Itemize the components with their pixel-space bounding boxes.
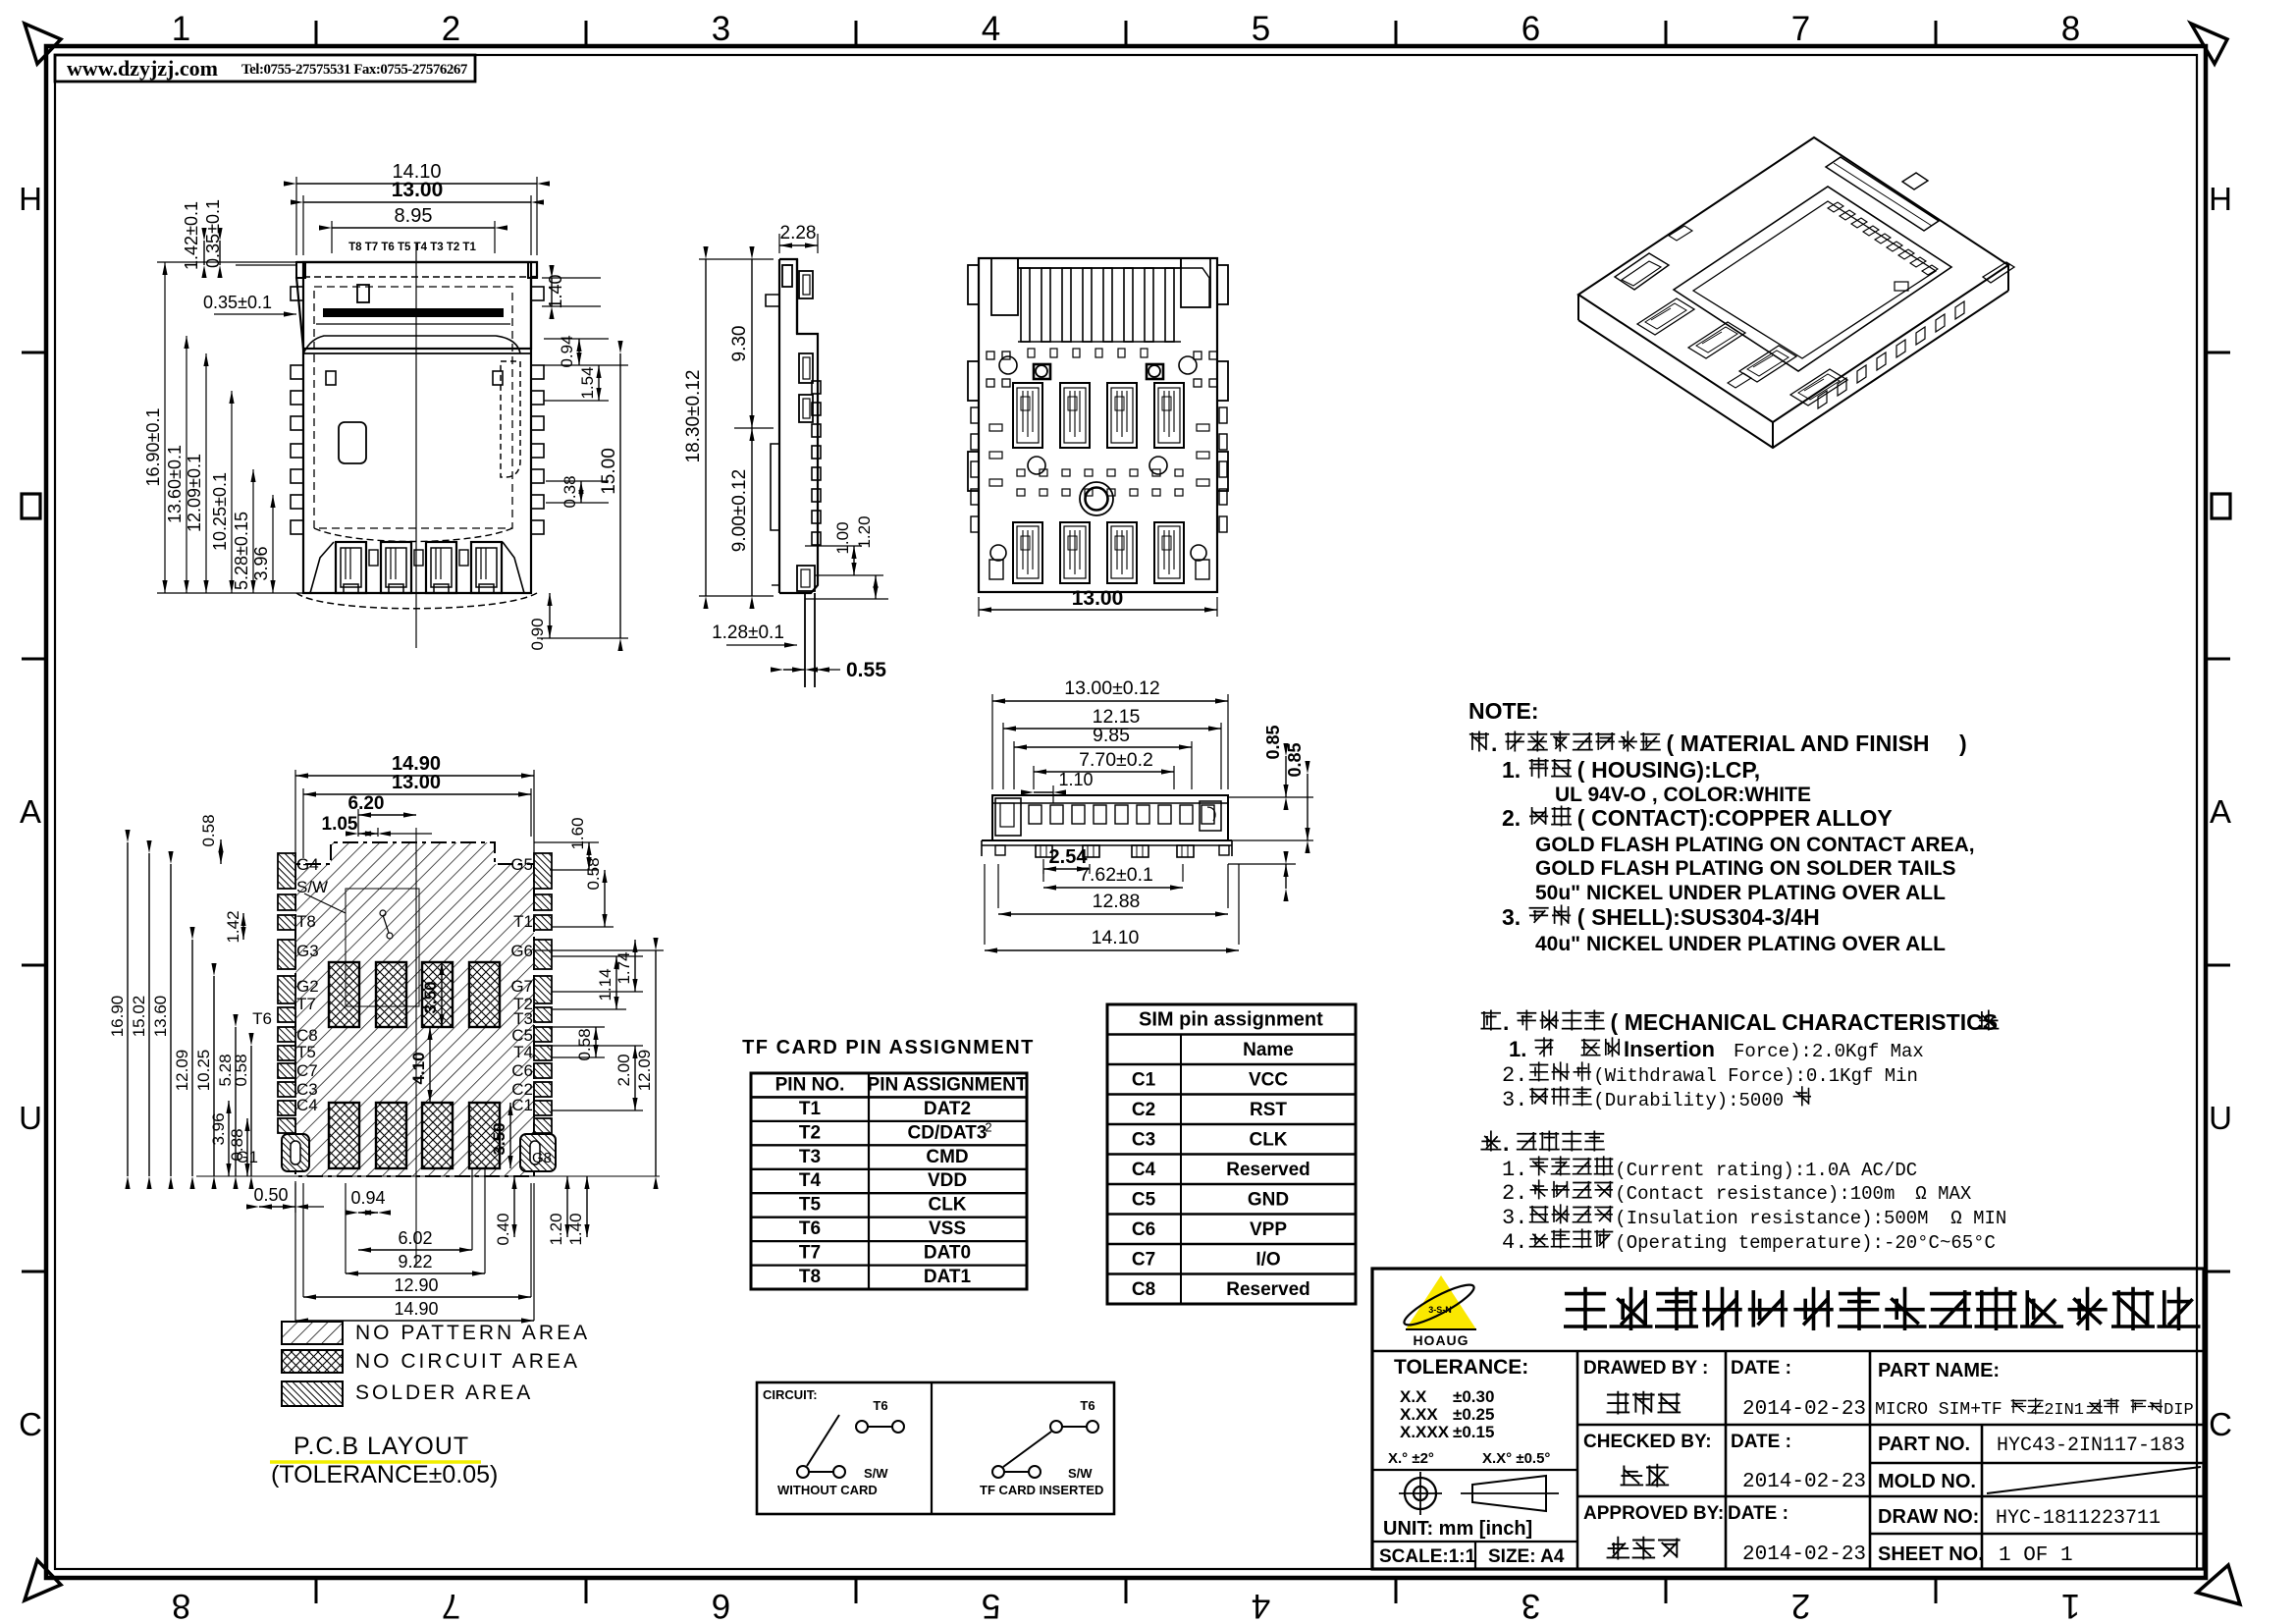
svg-text:1.40: 1.40 <box>566 1213 585 1245</box>
svg-text:10.25: 10.25 <box>194 1050 213 1092</box>
svg-text:T4: T4 <box>799 1170 822 1191</box>
svg-text:12.09: 12.09 <box>173 1050 191 1092</box>
svg-text:S/W: S/W <box>296 878 328 896</box>
svg-text:PIN NO.: PIN NO. <box>775 1074 845 1095</box>
svg-text:1.20: 1.20 <box>547 1213 565 1245</box>
svg-text:G5: G5 <box>510 855 533 874</box>
svg-text:7.70±0.2: 7.70±0.2 <box>1079 749 1153 771</box>
svg-text:TF CARD PIN ASSIGNMENT: TF CARD PIN ASSIGNMENT <box>742 1037 1035 1058</box>
svg-text:VSS: VSS <box>929 1218 966 1239</box>
svg-text:PART NAME:: PART NAME: <box>1878 1360 2000 1381</box>
svg-text:1.05: 1.05 <box>322 814 358 835</box>
svg-text:T6: T6 <box>252 1009 272 1028</box>
svg-text:PIN ASSIGNMENT: PIN ASSIGNMENT <box>868 1074 1028 1095</box>
svg-text:0.58: 0.58 <box>584 857 603 890</box>
svg-text:VDD: VDD <box>928 1170 967 1191</box>
svg-text:1.00: 1.00 <box>833 521 852 554</box>
svg-text:40u" NICKEL UNDER PLATING: 40u" NICKEL UNDER PLATING OVER ALL <box>1535 933 1946 955</box>
svg-text:0.58: 0.58 <box>232 1054 250 1086</box>
svg-text:T8: T8 <box>296 912 316 931</box>
svg-text:3: 3 <box>712 10 730 48</box>
svg-text:DATE :: DATE : <box>1731 1358 1791 1379</box>
svg-text:CHECKED BY:: CHECKED BY: <box>1583 1432 1712 1452</box>
svg-text:HYC-1811223711: HYC-1811223711 <box>1996 1507 2161 1530</box>
svg-text:Name: Name <box>1243 1040 1294 1060</box>
svg-text:SCALE:1:1: SCALE:1:1 <box>1379 1546 1476 1567</box>
svg-text:CD/DAT3: CD/DAT3 <box>908 1122 988 1143</box>
svg-text:13.60±0.1: 13.60±0.1 <box>165 445 185 523</box>
svg-text:T8: T8 <box>799 1267 821 1287</box>
svg-text:C6: C6 <box>1132 1219 1155 1240</box>
svg-text:DRAW NO:: DRAW NO: <box>1878 1506 1979 1528</box>
svg-text:DRAWED BY :: DRAWED BY : <box>1583 1358 1708 1379</box>
svg-text:(Withdrawal Force):0.1Kgf Min: (Withdrawal Force):0.1Kgf Min <box>1593 1065 1918 1087</box>
svg-text:0.58: 0.58 <box>199 814 218 846</box>
svg-text:VPP: VPP <box>1250 1219 1287 1240</box>
svg-text:1.40: 1.40 <box>546 274 565 308</box>
svg-text:GOLD FLASH PLATING ON CONT: GOLD FLASH PLATING ON CONTACT AREA, <box>1535 834 1975 856</box>
svg-text:1.28±0.1: 1.28±0.1 <box>712 623 784 643</box>
svg-text:C8: C8 <box>1132 1279 1155 1300</box>
svg-text:.: . <box>1503 1130 1509 1156</box>
svg-text:MOLD NO.: MOLD NO. <box>1878 1471 1976 1492</box>
svg-text:SIM pin assignment: SIM pin assignment <box>1139 1009 1323 1031</box>
svg-text:.: . <box>1503 1009 1509 1035</box>
svg-text:DATE :: DATE : <box>1731 1432 1791 1452</box>
svg-text:2.00: 2.00 <box>614 1054 633 1086</box>
svg-text:VCC: VCC <box>1249 1070 1288 1091</box>
svg-text:SHELL):SUS304-3/4H: SHELL):SUS304-3/4H <box>1591 904 1820 930</box>
svg-text:(Operating temperature):-20°C~: (Operating temperature):-20°C~65°C <box>1615 1232 1996 1254</box>
svg-text:3.50: 3.50 <box>490 1122 508 1155</box>
svg-text:C7: C7 <box>296 1061 318 1080</box>
svg-text:7: 7 <box>442 1587 460 1624</box>
svg-text:±0.25: ±0.25 <box>1453 1405 1494 1424</box>
svg-text:X.° ±2°: X.° ±2° <box>1388 1450 1434 1467</box>
svg-text:U: U <box>2209 1100 2232 1136</box>
svg-text:T5: T5 <box>296 1043 316 1061</box>
svg-text:T6: T6 <box>873 1398 887 1413</box>
svg-text:2.: 2. <box>1502 1181 1527 1206</box>
svg-text:P.C.B LAYOUT: P.C.B LAYOUT <box>294 1433 469 1460</box>
svg-text:NO CIRCUIT AREA: NO CIRCUIT AREA <box>355 1350 580 1373</box>
svg-text:CLK: CLK <box>1249 1130 1287 1151</box>
svg-text:1.54: 1.54 <box>578 366 597 399</box>
svg-text:5.28±0.15: 5.28±0.15 <box>232 512 251 590</box>
svg-text:H: H <box>19 181 42 217</box>
svg-text:C5: C5 <box>1132 1190 1156 1211</box>
svg-text:(TOLERANCE±0.05): (TOLERANCE±0.05) <box>271 1461 498 1489</box>
svg-text:MICRO SIM+TF: MICRO SIM+TF <box>1875 1400 2002 1420</box>
svg-text:): ) <box>1959 731 1967 756</box>
svg-text:T3: T3 <box>799 1147 821 1167</box>
svg-text:(: ( <box>1611 1009 1619 1035</box>
svg-text:A: A <box>20 793 41 830</box>
svg-text:13.00: 13.00 <box>392 179 444 201</box>
svg-text:S/W: S/W <box>864 1466 888 1481</box>
svg-text:TF CARD INSERTED: TF CARD INSERTED <box>980 1483 1103 1497</box>
svg-text:T7: T7 <box>799 1243 821 1264</box>
svg-text:5: 5 <box>982 1587 1000 1624</box>
svg-text:HOAUG: HOAUG <box>1413 1332 1468 1348</box>
svg-text:G7: G7 <box>510 977 533 996</box>
svg-text:Ω MAX: Ω MAX <box>1915 1183 1972 1205</box>
svg-text:14.10: 14.10 <box>1092 927 1140 948</box>
svg-text:S/W: S/W <box>1068 1466 1093 1481</box>
svg-text:DATE :: DATE : <box>1728 1503 1789 1524</box>
svg-text:13.00: 13.00 <box>1072 587 1124 610</box>
svg-text:1: 1 <box>2061 1587 2080 1624</box>
svg-text:C4: C4 <box>1132 1160 1156 1180</box>
svg-text:DAT1: DAT1 <box>924 1267 972 1287</box>
svg-text:CIRCUIT:: CIRCUIT: <box>763 1387 818 1402</box>
svg-text:1.42: 1.42 <box>224 910 242 943</box>
svg-text:CLK: CLK <box>928 1195 966 1216</box>
svg-text:DAT2: DAT2 <box>924 1099 971 1119</box>
svg-text:RST: RST <box>1250 1100 1287 1120</box>
svg-text:C4: C4 <box>296 1096 318 1114</box>
svg-text:C1: C1 <box>511 1096 533 1114</box>
svg-text:1.10: 1.10 <box>1058 770 1093 789</box>
svg-text:T8 T7 T6 T5 T4 T3 T2 T1: T8 T7 T6 T5 T4 T3 T2 T1 <box>348 242 476 253</box>
svg-text:Force):2.0Kgf Max: Force):2.0Kgf Max <box>1734 1041 1924 1062</box>
svg-text:1.20: 1.20 <box>855 515 874 548</box>
svg-text:3.: 3. <box>1502 1088 1527 1112</box>
svg-text:3.96: 3.96 <box>209 1112 228 1145</box>
svg-text:www.dzyjzj.com: www.dzyjzj.com <box>67 56 218 81</box>
svg-text:2.: 2. <box>1502 805 1521 831</box>
svg-text:7: 7 <box>1791 10 1810 48</box>
svg-text:.: . <box>1491 731 1497 756</box>
svg-text:SOLDER AREA: SOLDER AREA <box>355 1381 533 1404</box>
svg-text:HOUSING):LCP,: HOUSING):LCP, <box>1591 757 1760 783</box>
svg-text:1.42±0.1: 1.42±0.1 <box>182 201 201 270</box>
svg-text:2014-02-23: 2014-02-23 <box>1742 1471 1866 1493</box>
svg-text:9.22: 9.22 <box>398 1252 432 1272</box>
svg-text:TOLERANCE:: TOLERANCE: <box>1394 1356 1528 1379</box>
svg-text:16.90±0.1: 16.90±0.1 <box>143 408 163 487</box>
svg-text:(: ( <box>1577 904 1585 930</box>
svg-text:13.60: 13.60 <box>151 996 170 1038</box>
svg-text:NOTE:: NOTE: <box>1468 698 1539 724</box>
svg-text:I/O: I/O <box>1255 1250 1280 1271</box>
svg-text:1.14: 1.14 <box>596 968 614 1001</box>
svg-text:0.85: 0.85 <box>1285 742 1305 777</box>
svg-text:HYC43-2IN117-183: HYC43-2IN117-183 <box>1997 1435 2185 1457</box>
svg-text:1.: 1. <box>1509 1037 1526 1061</box>
svg-text:2: 2 <box>442 10 460 48</box>
svg-text:C6: C6 <box>511 1061 533 1080</box>
svg-text:6.20: 6.20 <box>348 793 385 814</box>
svg-text:MECHANICAL CHARACTERISTICS: MECHANICAL CHARACTERISTICS <box>1625 1009 1998 1035</box>
svg-text:(Insulation resistance):500M: (Insulation resistance):500M <box>1615 1208 1928 1229</box>
svg-text:NO PATTERN AREA: NO PATTERN AREA <box>355 1322 590 1344</box>
svg-text:4.10: 4.10 <box>409 1052 428 1084</box>
svg-text:G2: G2 <box>296 977 319 996</box>
svg-text:G8: G8 <box>532 1150 552 1166</box>
svg-text:0.40: 0.40 <box>494 1213 512 1245</box>
svg-text:T7: T7 <box>296 995 316 1013</box>
svg-text:0.50: 0.50 <box>253 1185 288 1205</box>
svg-text:UL 94V-O , COLOR:WHITE: UL 94V-O , COLOR:WHITE <box>1555 784 1811 806</box>
svg-text:16.90: 16.90 <box>108 996 127 1038</box>
svg-text:G6: G6 <box>510 942 533 960</box>
svg-text:4: 4 <box>1252 1587 1270 1624</box>
svg-text:9.85: 9.85 <box>1093 725 1130 746</box>
svg-text:SHEET NO.: SHEET NO. <box>1878 1543 1984 1565</box>
svg-text:WITHOUT CARD: WITHOUT CARD <box>777 1483 878 1497</box>
svg-text:0.90: 0.90 <box>528 618 547 650</box>
svg-text:2: 2 <box>1791 1587 1810 1624</box>
svg-text:(: ( <box>1577 805 1585 831</box>
svg-text:Ω MIN: Ω MIN <box>1950 1208 2006 1229</box>
svg-text:5: 5 <box>1252 10 1270 48</box>
svg-text:1.: 1. <box>1502 757 1521 783</box>
svg-text:3: 3 <box>1522 1587 1540 1624</box>
svg-text:T6: T6 <box>799 1218 821 1239</box>
svg-text:12.88: 12.88 <box>1093 891 1141 912</box>
svg-text:T6: T6 <box>1080 1398 1095 1413</box>
svg-text:CONTACT):COPPER ALLOY: CONTACT):COPPER ALLOY <box>1591 805 1893 831</box>
svg-text:T4: T4 <box>513 1043 533 1061</box>
svg-text:U: U <box>19 1100 42 1136</box>
svg-text:C7: C7 <box>1132 1250 1155 1271</box>
svg-text:0.94: 0.94 <box>350 1188 385 1208</box>
svg-text:G3: G3 <box>296 942 319 960</box>
svg-text:14.90: 14.90 <box>394 1299 438 1319</box>
svg-text:13.00±0.12: 13.00±0.12 <box>1064 677 1159 699</box>
svg-text:1.: 1. <box>1502 1158 1527 1182</box>
svg-text:2.: 2. <box>1502 1063 1527 1088</box>
svg-text:1.60: 1.60 <box>568 817 587 849</box>
svg-text:H: H <box>2209 181 2232 217</box>
svg-text:7.62±0.1: 7.62±0.1 <box>1079 864 1153 886</box>
svg-text:C3: C3 <box>1132 1130 1155 1151</box>
svg-text:12.09: 12.09 <box>635 1050 654 1092</box>
svg-text:6: 6 <box>712 1587 730 1624</box>
svg-text:13.00: 13.00 <box>392 772 441 793</box>
svg-text:3.: 3. <box>1502 1206 1527 1230</box>
svg-text:3.50: 3.50 <box>421 981 440 1013</box>
svg-text:Tel:0755-27575531 Fax:0755-27: Tel:0755-27575531 Fax:0755-27576267 <box>241 62 468 78</box>
svg-text:15.00: 15.00 <box>599 448 619 495</box>
svg-text:3.: 3. <box>1502 904 1521 930</box>
svg-text:GOLD FLASH PLATING ON SOLD: GOLD FLASH PLATING ON SOLDER TAILS <box>1535 857 1956 880</box>
svg-text:0.58: 0.58 <box>575 1028 594 1060</box>
svg-text:T2: T2 <box>799 1122 821 1143</box>
svg-text:G4: G4 <box>296 855 319 874</box>
svg-text:X.X° ±0.5°: X.X° ±0.5° <box>1482 1450 1550 1467</box>
svg-text:GND: GND <box>1248 1190 1289 1211</box>
svg-text:C: C <box>2209 1406 2232 1442</box>
svg-text:MATERIAL AND FINISH: MATERIAL AND FINISH <box>1681 731 1930 756</box>
svg-text:6: 6 <box>1522 10 1540 48</box>
svg-text:4.: 4. <box>1502 1230 1527 1255</box>
svg-text:2014-02-23: 2014-02-23 <box>1742 1543 1866 1566</box>
svg-text:0.55: 0.55 <box>846 659 886 681</box>
svg-text:12.09±0.1: 12.09±0.1 <box>185 454 204 532</box>
svg-text:18.30±0.12: 18.30±0.12 <box>683 370 704 463</box>
svg-text:15.02: 15.02 <box>130 996 148 1038</box>
svg-text:1: 1 <box>172 10 190 48</box>
svg-text:8: 8 <box>172 1587 190 1624</box>
svg-text:2014-02-23: 2014-02-23 <box>1742 1398 1866 1421</box>
svg-text:50u" NICKEL UNDER PLATING: 50u" NICKEL UNDER PLATING OVER ALL <box>1535 882 1946 904</box>
svg-text:9.30: 9.30 <box>729 326 750 362</box>
svg-text:4: 4 <box>982 10 1000 48</box>
svg-text:10.25±0.1: 10.25±0.1 <box>210 472 230 551</box>
svg-text:3.96: 3.96 <box>251 546 271 580</box>
svg-text:3-S-N: 3-S-N <box>1428 1305 1452 1315</box>
svg-text:C: C <box>19 1406 42 1442</box>
svg-text:(Current rating):1.0A AC/DC: (Current rating):1.0A AC/DC <box>1615 1160 1917 1181</box>
svg-text:PART NO.: PART NO. <box>1878 1434 1970 1455</box>
svg-text:(Durability):5000: (Durability):5000 <box>1593 1090 1784 1111</box>
svg-text:12.90: 12.90 <box>394 1275 438 1295</box>
svg-text:T1: T1 <box>799 1099 822 1119</box>
svg-text:X.XX: X.XX <box>1400 1405 1438 1424</box>
svg-text:±0.30: ±0.30 <box>1453 1387 1494 1406</box>
svg-text:DIP: DIP <box>2163 1401 2194 1420</box>
svg-text:(: ( <box>1667 731 1675 756</box>
svg-text:8.95: 8.95 <box>395 205 433 227</box>
svg-text:(Contact resistance):100m: (Contact resistance):100m <box>1615 1183 1895 1205</box>
svg-text:X.X: X.X <box>1400 1387 1427 1406</box>
svg-text:X.XXX: X.XXX <box>1400 1423 1450 1441</box>
svg-text:C1: C1 <box>1132 1070 1156 1091</box>
svg-text:A: A <box>2210 793 2231 830</box>
svg-text:±0.15: ±0.15 <box>1453 1423 1494 1441</box>
svg-text:1 OF 1: 1 OF 1 <box>1999 1544 2073 1567</box>
svg-text:Reserved: Reserved <box>1226 1279 1310 1300</box>
svg-text:Insertion: Insertion <box>1624 1037 1715 1061</box>
svg-text:0.35±0.1: 0.35±0.1 <box>203 293 272 312</box>
svg-text:(: ( <box>1577 757 1585 783</box>
svg-text:0.85: 0.85 <box>1263 725 1283 759</box>
svg-text:2IN1: 2IN1 <box>2044 1401 2084 1420</box>
svg-text:9.00±0.12: 9.00±0.12 <box>729 469 750 552</box>
svg-text:T5: T5 <box>799 1195 822 1216</box>
svg-text:T1: T1 <box>513 912 533 931</box>
svg-text:0.35±0.1: 0.35±0.1 <box>203 199 223 268</box>
svg-text:8: 8 <box>2061 10 2080 48</box>
svg-text:2: 2 <box>985 1119 991 1134</box>
svg-text:SIZE: A4: SIZE: A4 <box>1488 1546 1565 1567</box>
svg-text:C2: C2 <box>1132 1100 1155 1120</box>
svg-text:0.88: 0.88 <box>228 1128 246 1161</box>
svg-text:CMD: CMD <box>926 1147 968 1167</box>
svg-text:2.28: 2.28 <box>780 223 817 244</box>
svg-text:Reserved: Reserved <box>1226 1160 1310 1180</box>
svg-text:6.02: 6.02 <box>398 1228 432 1248</box>
svg-text:UNIT: mm [inch]: UNIT: mm [inch] <box>1383 1518 1532 1540</box>
svg-text:0.94: 0.94 <box>558 335 576 367</box>
svg-text:DAT0: DAT0 <box>924 1243 971 1264</box>
svg-text:APPROVED BY:: APPROVED BY: <box>1583 1503 1724 1524</box>
